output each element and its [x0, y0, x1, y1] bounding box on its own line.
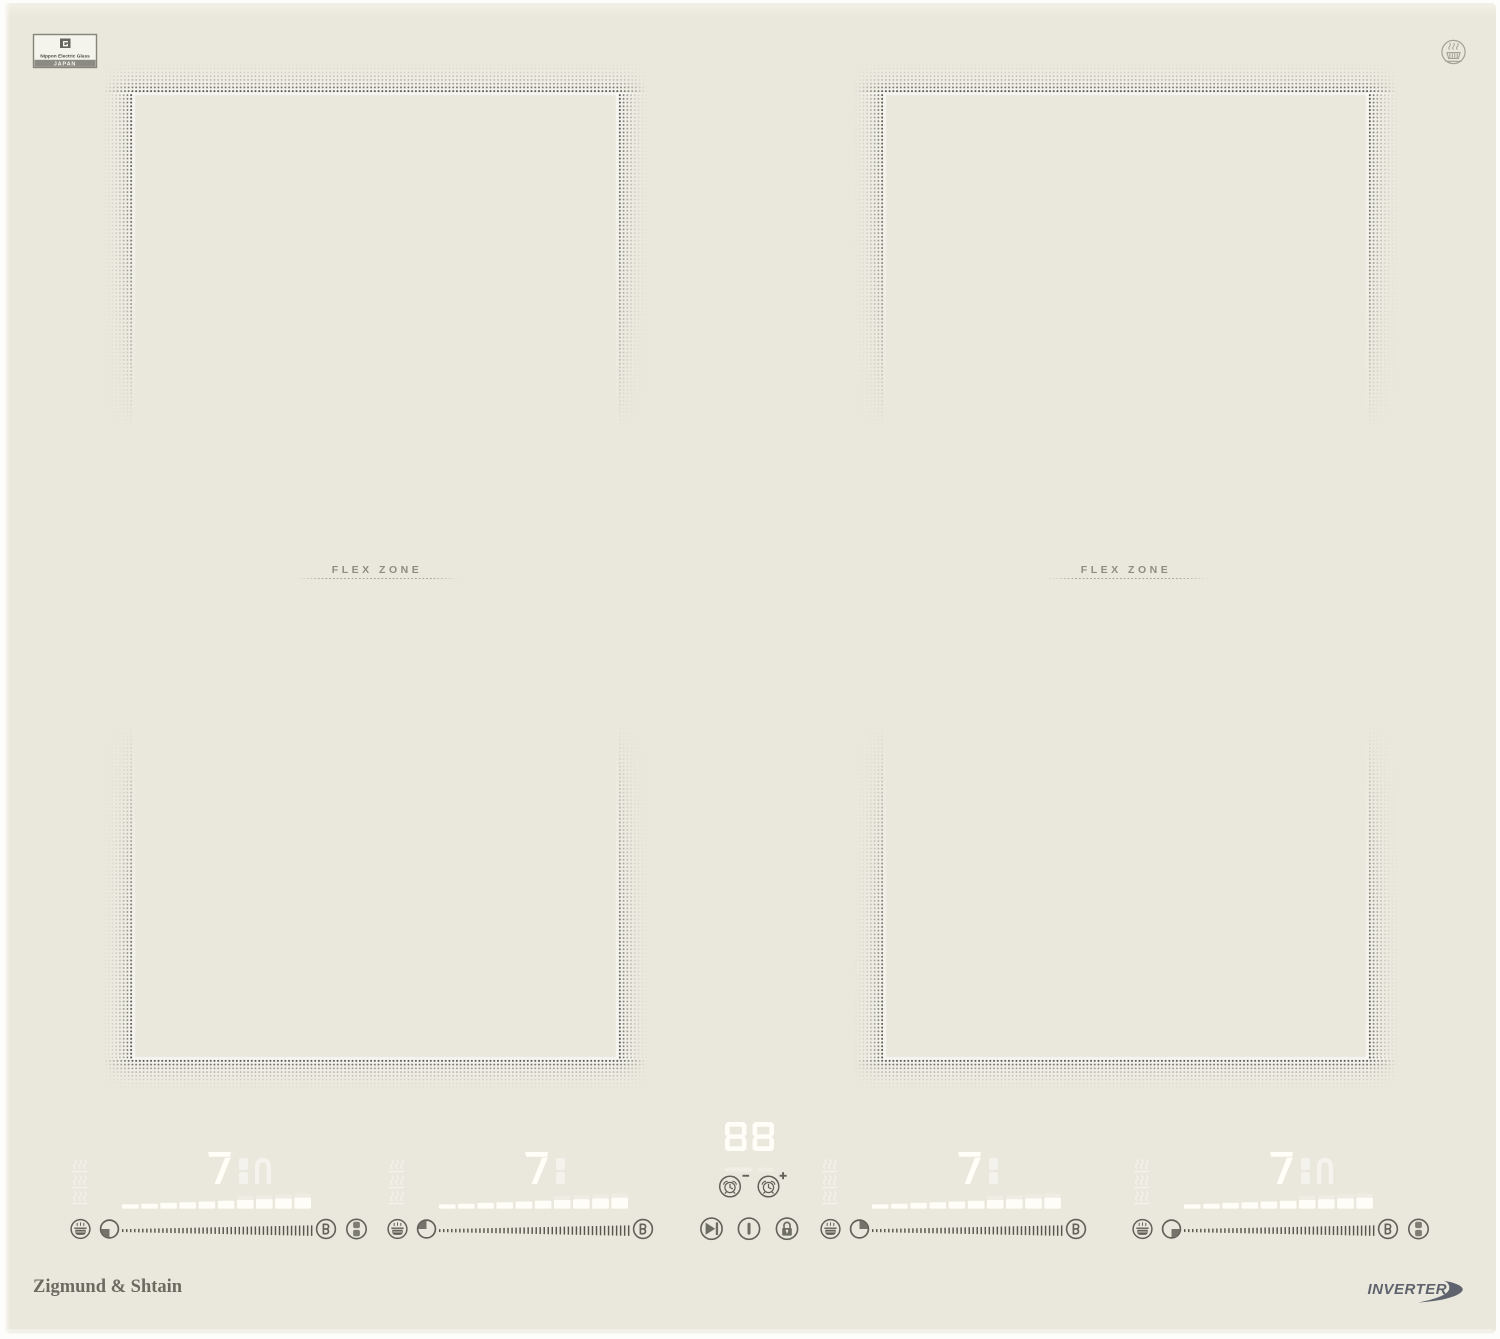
svg-text:FLEX ZONE: FLEX ZONE: [1081, 564, 1171, 576]
svg-text:Zigmund & Shtain: Zigmund & Shtain: [33, 1277, 183, 1297]
svg-text:JAPAN: JAPAN: [54, 62, 77, 68]
svg-text:Nippon Electric Glass: Nippon Electric Glass: [40, 54, 90, 60]
svg-text:INVERTER: INVERTER: [1368, 1281, 1448, 1298]
svg-text:FLEX ZONE: FLEX ZONE: [332, 564, 422, 576]
